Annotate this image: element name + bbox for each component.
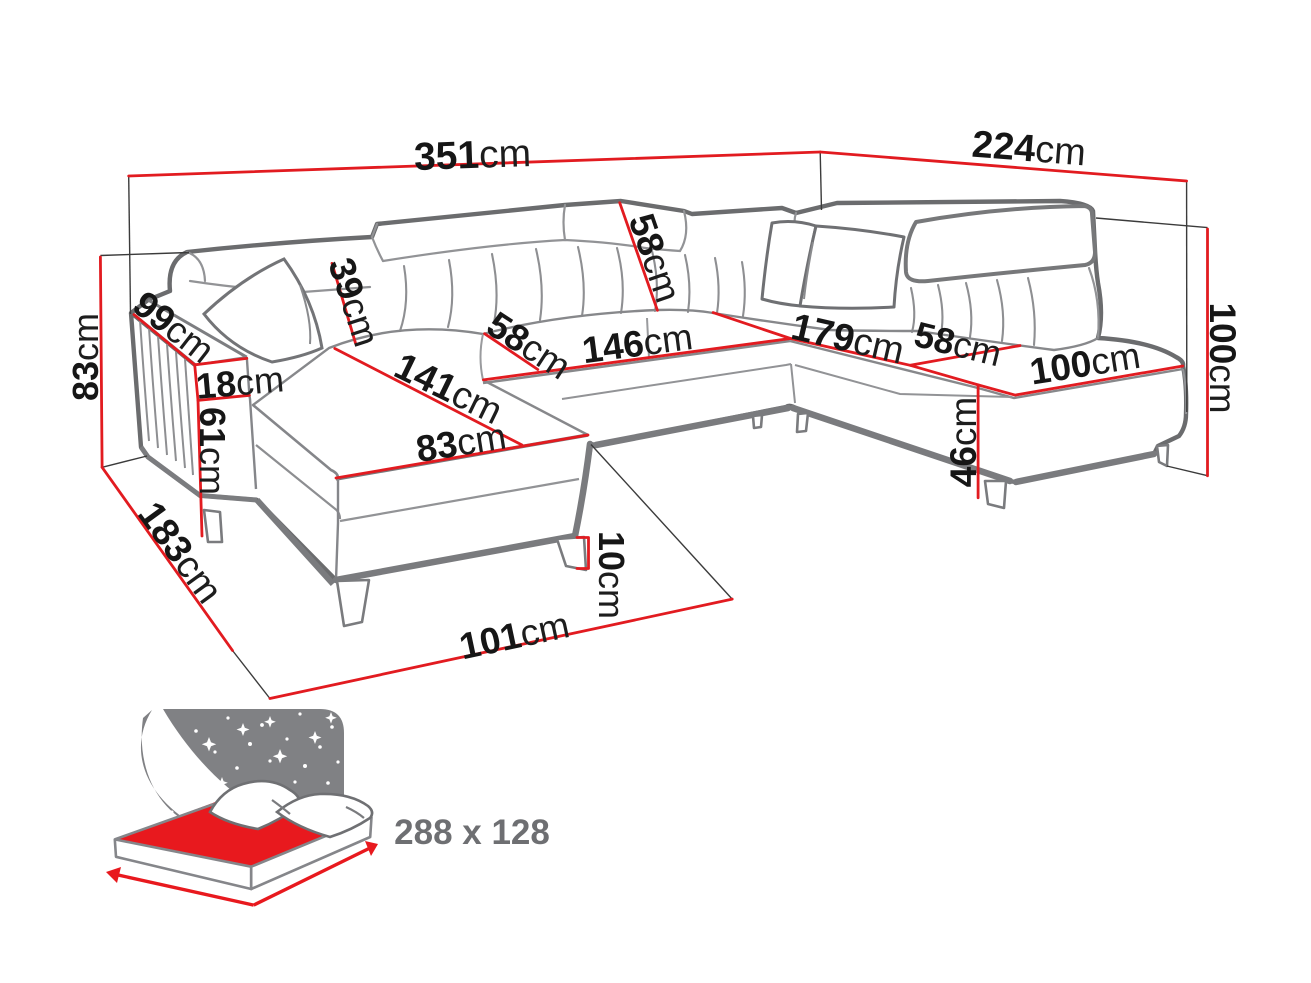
- svg-text:61cm: 61cm: [192, 407, 233, 495]
- svg-text:18cm: 18cm: [194, 358, 285, 407]
- svg-text:224cm: 224cm: [970, 124, 1087, 175]
- svg-text:46cm: 46cm: [943, 397, 984, 487]
- svg-text:83cm: 83cm: [65, 313, 106, 401]
- svg-text:100cm: 100cm: [1202, 302, 1243, 413]
- svg-text:288 x 128: 288 x 128: [394, 813, 550, 852]
- svg-text:351cm: 351cm: [413, 132, 532, 179]
- svg-text:10cm: 10cm: [591, 531, 632, 619]
